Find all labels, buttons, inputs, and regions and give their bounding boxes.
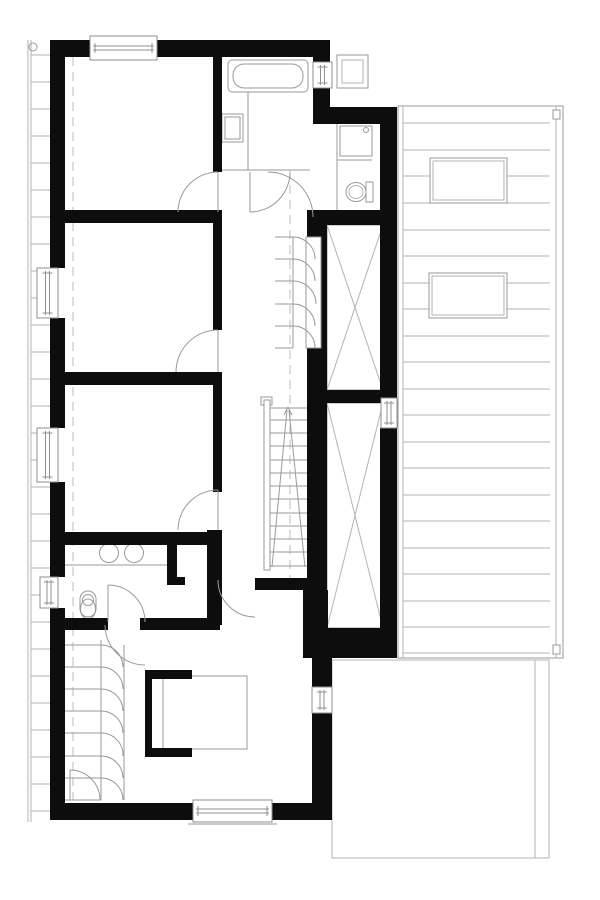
wall-segment xyxy=(145,670,152,757)
wall-segment xyxy=(213,212,222,330)
closet-door-arc xyxy=(101,733,123,756)
door-swing-arc xyxy=(250,172,290,212)
fixture-circle xyxy=(29,43,37,51)
door-swing-arc xyxy=(178,490,218,530)
wall-segment xyxy=(50,482,65,577)
fixture-circle xyxy=(100,544,119,563)
closet-door-arc xyxy=(101,778,123,800)
wall-segment xyxy=(213,57,222,172)
wall-segment xyxy=(380,428,397,658)
furniture-outline xyxy=(225,117,240,139)
wall-segment xyxy=(145,670,192,679)
closet-door-arc xyxy=(101,689,123,711)
door-swing-arc xyxy=(105,625,145,665)
wall-segment xyxy=(50,532,220,545)
furniture-outline xyxy=(163,676,247,749)
closet-door-arc xyxy=(101,667,123,689)
wall-segment xyxy=(213,372,222,492)
wall-segment xyxy=(50,40,65,268)
roof-drain xyxy=(553,110,560,119)
detail-line xyxy=(289,410,305,567)
floor-plan-drawing xyxy=(0,0,600,900)
wall-segment xyxy=(50,372,222,385)
door-swing-arc xyxy=(70,770,100,800)
window xyxy=(193,800,272,822)
wall-segment xyxy=(312,658,332,687)
wall-segment xyxy=(303,628,397,658)
window xyxy=(312,687,332,713)
lower-terrace-outline xyxy=(332,660,549,858)
wall-segment xyxy=(140,618,220,630)
furniture-outline xyxy=(340,126,372,156)
window xyxy=(313,62,332,88)
closet-door-arc xyxy=(101,645,123,667)
detail-line xyxy=(272,410,287,567)
door-swing-arc xyxy=(178,172,218,212)
wall-segment xyxy=(312,713,332,820)
door-swing-arc xyxy=(108,585,145,622)
roof-drain xyxy=(553,645,560,654)
wall-segment xyxy=(380,107,397,398)
wall-segment xyxy=(145,748,192,757)
window xyxy=(37,428,58,482)
furniture-outline xyxy=(366,182,373,202)
background-layer xyxy=(28,40,290,822)
skylight xyxy=(430,158,507,203)
window xyxy=(37,268,58,318)
door-swing-arc xyxy=(176,330,218,372)
fixture-circle xyxy=(125,544,144,563)
furniture-outline xyxy=(264,400,270,570)
wall-segment xyxy=(167,577,185,585)
door-swing-arc xyxy=(218,580,255,617)
wall-segment xyxy=(50,608,65,820)
wall-segment xyxy=(50,618,108,630)
window xyxy=(90,36,157,60)
wall-segment xyxy=(313,40,330,62)
floor-plan-page xyxy=(0,0,600,900)
wall-segment xyxy=(157,40,330,57)
closet-door-arc xyxy=(101,711,123,733)
skylight xyxy=(429,273,507,318)
closet-door-arc xyxy=(101,756,123,778)
wall-segment xyxy=(303,590,328,630)
wall-segment xyxy=(50,803,193,820)
wall-segment xyxy=(50,210,222,223)
